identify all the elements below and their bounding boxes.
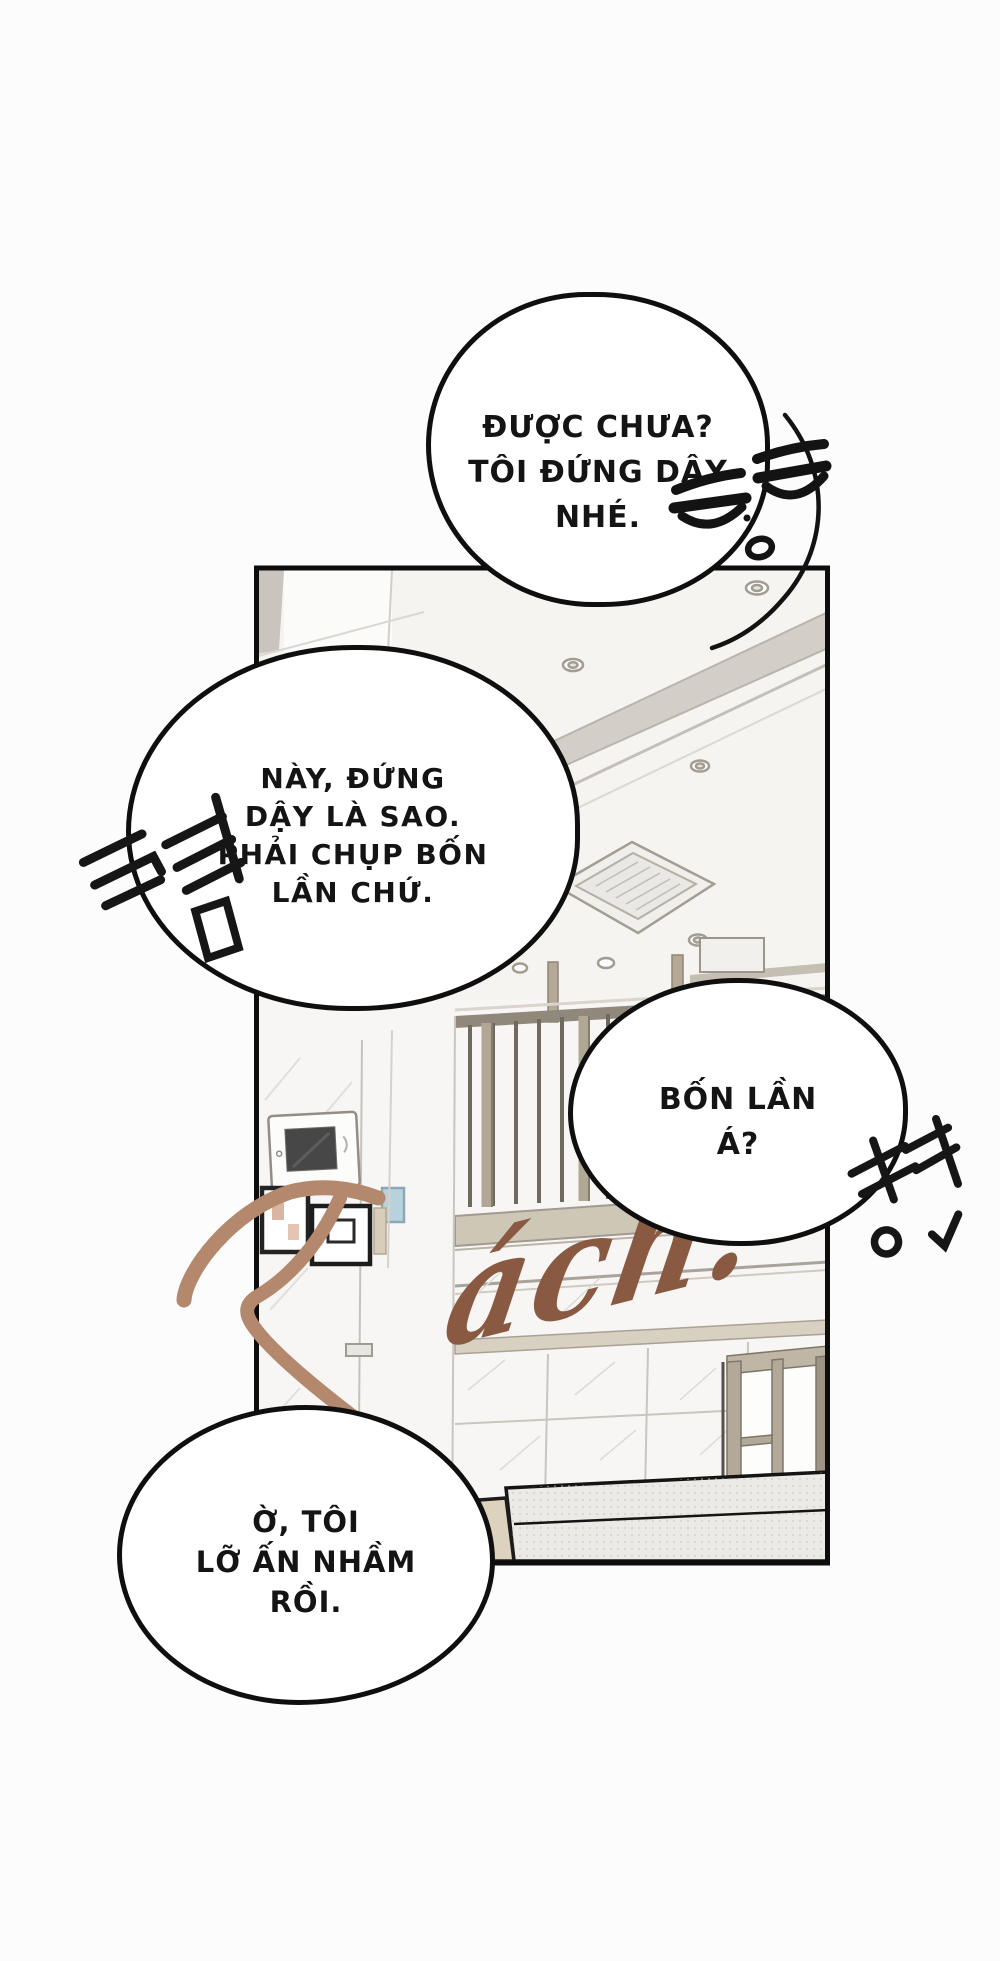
unamused-face-icon xyxy=(674,415,826,648)
korean-sfx-left-icon xyxy=(77,795,253,973)
emoticons xyxy=(0,0,1000,1961)
korean-sfx-right-icon xyxy=(844,1116,976,1262)
comic-page: { "page": { "background": "#fcfcfc", "ki… xyxy=(0,0,1000,1961)
